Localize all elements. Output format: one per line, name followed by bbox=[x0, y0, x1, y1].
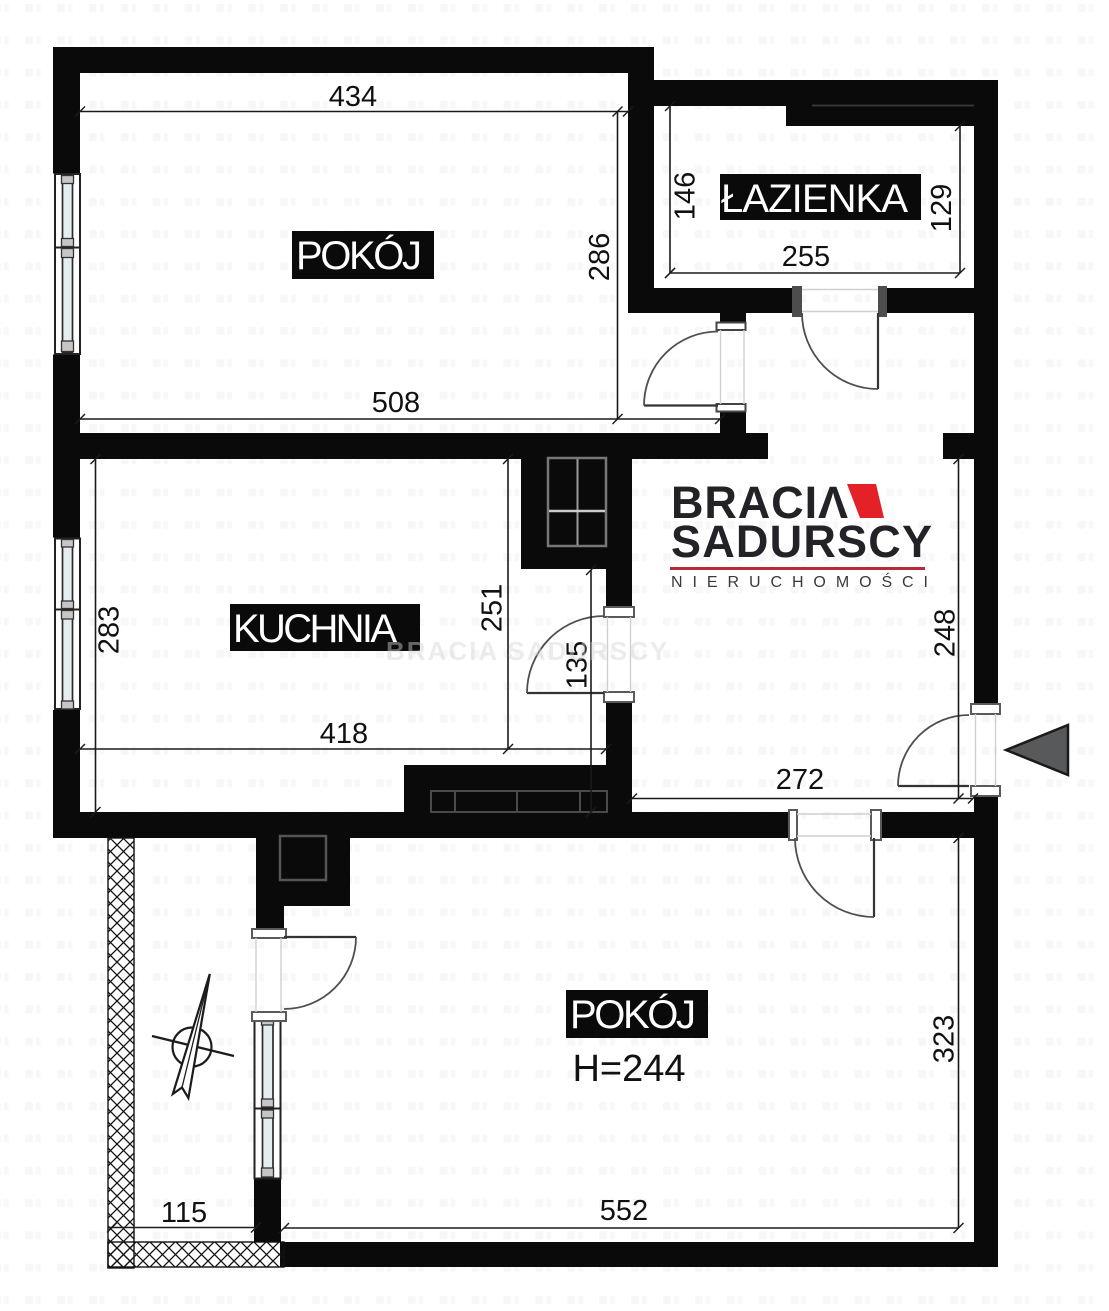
svg-text:272: 272 bbox=[776, 764, 824, 796]
svg-text:255: 255 bbox=[782, 241, 830, 273]
svg-text:248: 248 bbox=[930, 609, 962, 657]
svg-text:286: 286 bbox=[584, 233, 616, 281]
svg-text:H=244: H=244 bbox=[572, 1048, 685, 1090]
svg-text:434: 434 bbox=[329, 81, 377, 113]
svg-text:283: 283 bbox=[94, 606, 126, 654]
svg-text:SADURSCY: SADURSCY bbox=[671, 516, 932, 567]
svg-text:508: 508 bbox=[372, 387, 420, 419]
svg-text:251: 251 bbox=[477, 584, 509, 632]
svg-text:ŁAZIENKA: ŁAZIENKA bbox=[721, 177, 908, 221]
svg-text:418: 418 bbox=[320, 718, 368, 750]
svg-text:552: 552 bbox=[600, 1195, 648, 1227]
svg-text:129: 129 bbox=[926, 184, 958, 232]
svg-text:POKÓJ: POKÓJ bbox=[296, 233, 422, 278]
svg-text:NIERUCHOMOŚCI: NIERUCHOMOŚCI bbox=[671, 572, 928, 591]
svg-text:KUCHNIA: KUCHNIA bbox=[233, 607, 397, 651]
svg-text:323: 323 bbox=[929, 1015, 961, 1063]
svg-text:POKÓJ: POKÓJ bbox=[570, 992, 696, 1037]
svg-text:146: 146 bbox=[670, 172, 702, 220]
svg-text:BRACIA SADURSCY: BRACIA SADURSCY bbox=[386, 636, 669, 666]
svg-text:115: 115 bbox=[161, 1197, 207, 1229]
